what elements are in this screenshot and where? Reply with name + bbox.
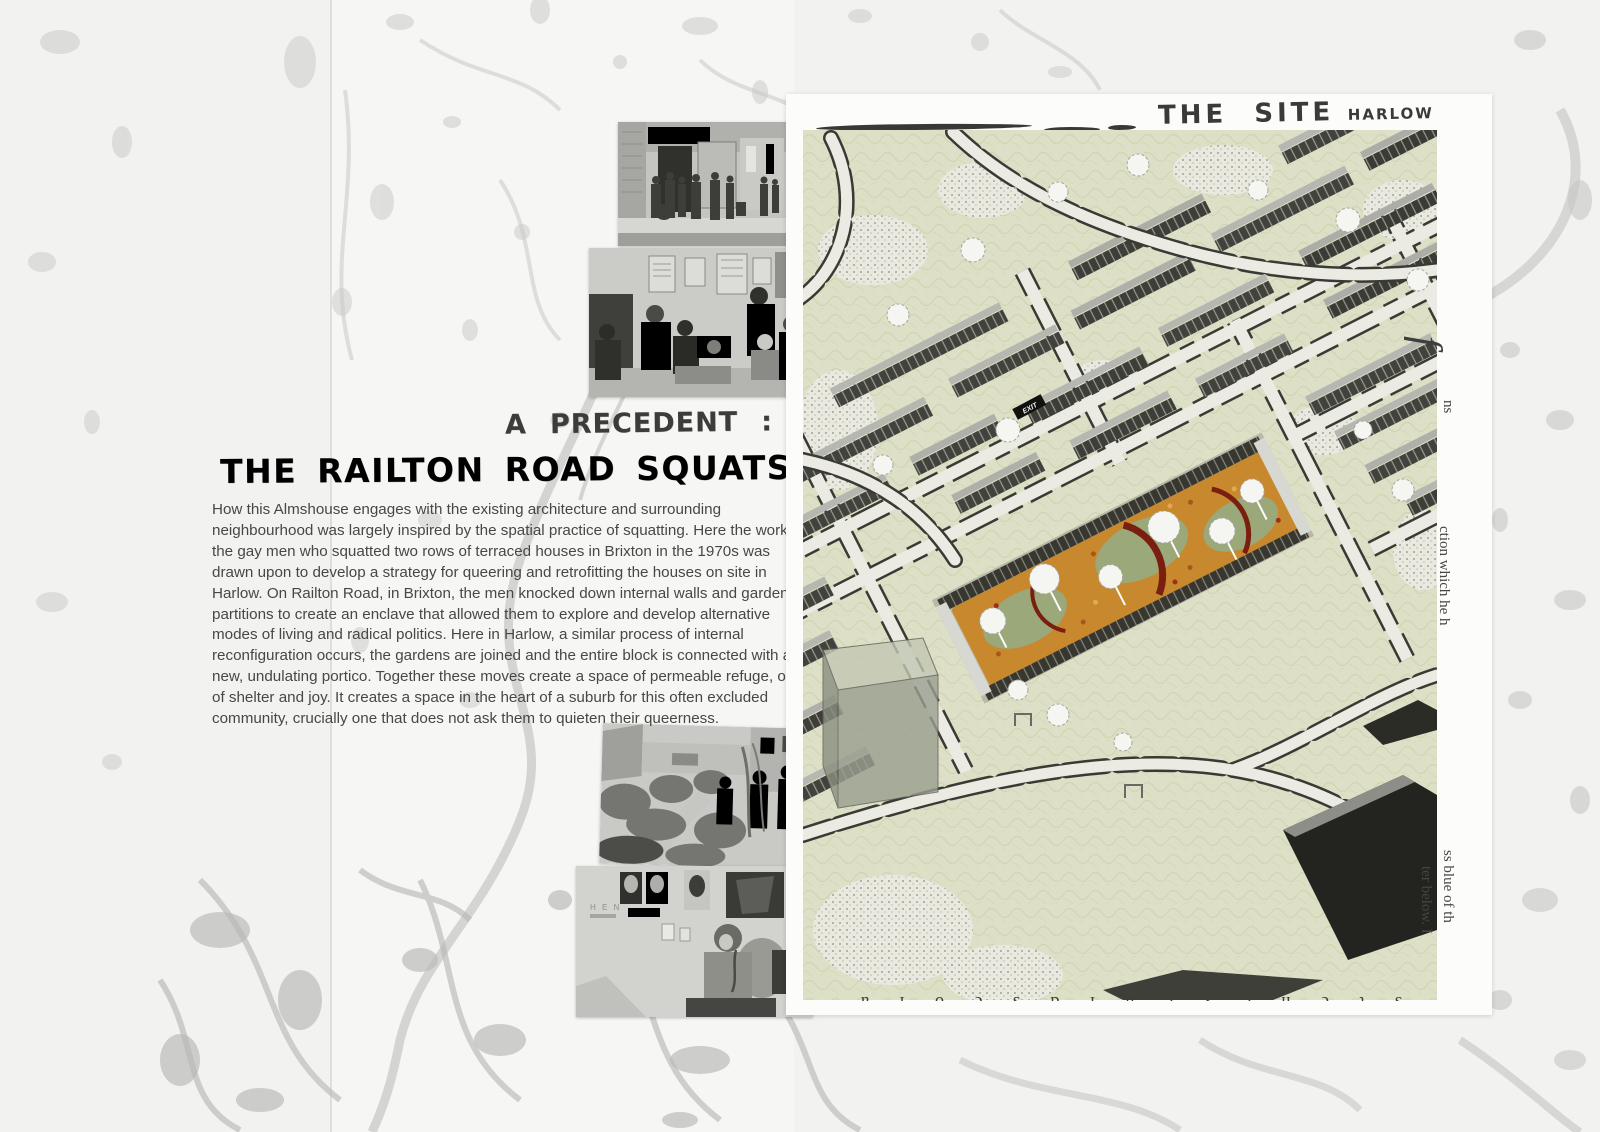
book-fragment: ter below. I <box>1417 866 1434 934</box>
wall-graffiti: H E N <box>590 903 621 912</box>
book-fragment: ns <box>1439 400 1456 413</box>
photo-shopfront-street <box>618 122 788 246</box>
cutoff-glyph-line: o l a v M i s t e h e x e n i d s e o l … <box>848 988 1420 1001</box>
site-map-sheet: THE SITE HARLOW <box>786 94 1492 1015</box>
field-prism <box>823 638 938 808</box>
book-fragment-swash: f <box>1402 336 1450 348</box>
photo-interior-telephone: H E N <box>576 866 813 1017</box>
site-map-illustration: EXIT <box>803 130 1437 1000</box>
photo-garden-work <box>599 723 817 869</box>
photo-interior-group <box>589 248 803 397</box>
map-subtitle: HARLOW <box>1348 104 1434 124</box>
map-title-label: THE SITE HARLOW <box>1158 95 1434 131</box>
page-title: THE RAILTON ROAD SQUATS <box>220 448 792 491</box>
portfolio-page: A PRECEDENT : THE RAILTON ROAD SQUATS Ho… <box>0 0 1600 1132</box>
book-fragment: ction which he h <box>1435 526 1452 626</box>
book-fragment: ss blue of th <box>1439 850 1456 923</box>
map-title: THE SITE <box>1158 97 1335 131</box>
handwritten-kicker: A PRECEDENT : <box>505 406 773 440</box>
body-paragraph: How this Almshouse engages with the exis… <box>212 500 808 730</box>
